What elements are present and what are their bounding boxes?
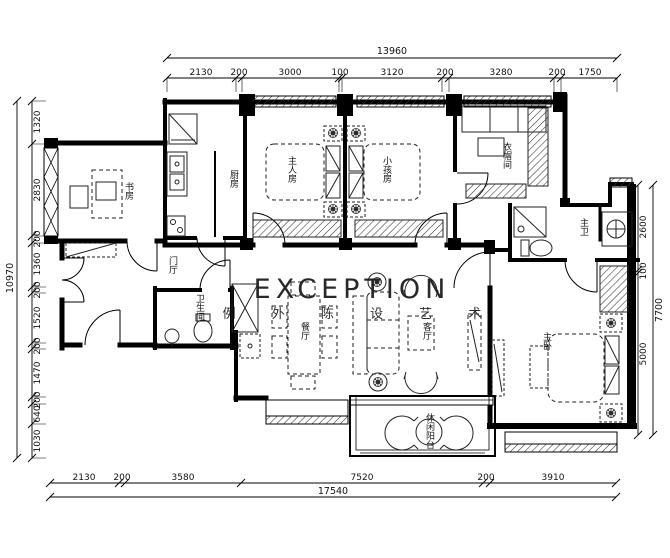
dim-left-1: 2830 xyxy=(33,178,43,201)
label-master-bath: 主卫 xyxy=(578,217,589,236)
label-balcony: 休闲阳台 xyxy=(424,412,435,450)
walls xyxy=(44,92,638,428)
dim-top-2: 3000 xyxy=(279,68,302,78)
master-bedroom-door xyxy=(454,252,490,288)
dining-bay-window xyxy=(266,400,348,424)
dim-bottom-0: 2130 xyxy=(73,473,96,483)
bath-window xyxy=(610,178,632,187)
floor-plan-drawing: EXCEPTION 例 外 陈 设 艺 术 xyxy=(0,0,670,558)
dim-top-5: 200 xyxy=(436,68,453,78)
master-bath-door xyxy=(565,260,597,292)
dim-left-3: 1360 xyxy=(33,252,43,275)
guest-bath-fixtures xyxy=(165,314,212,346)
master-room-window xyxy=(252,96,336,107)
master-room-bed xyxy=(253,126,342,237)
dim-left-0: 1320 xyxy=(33,110,43,133)
label-kitchen: 厨房 xyxy=(228,170,239,189)
dim-top-4: 3120 xyxy=(381,68,404,78)
watermark-title: EXCEPTION xyxy=(254,274,451,305)
dim-right-2: 5000 xyxy=(639,342,649,365)
master-bath-fixtures xyxy=(514,207,632,256)
dim-top-total: 13960 xyxy=(377,46,407,57)
dim-top-6: 3280 xyxy=(490,68,513,78)
dim-right-0: 2600 xyxy=(639,215,649,238)
floor-plan-page: EXCEPTION 例 外 陈 设 艺 术 xyxy=(0,0,670,558)
watermark-subtitle: 例 外 陈 设 艺 术 xyxy=(223,306,498,322)
bedroom-bay-window xyxy=(505,432,617,452)
dim-bottom-total: 17540 xyxy=(318,486,348,497)
dim-left-5: 1520 xyxy=(33,306,43,329)
dim-left-10: 1030 xyxy=(33,429,43,452)
label-hall: 门厅 xyxy=(167,255,178,274)
dim-top-7: 200 xyxy=(548,68,565,78)
label-living: 客厅 xyxy=(421,321,432,340)
entry-shoe-cabinet xyxy=(66,243,116,257)
label-master-room: 主人房 xyxy=(286,155,297,184)
dim-left-6: 200 xyxy=(33,337,43,354)
dim-right-total: 7700 xyxy=(654,298,665,322)
study-door xyxy=(127,241,157,271)
master-bedroom-bed xyxy=(492,266,628,422)
dim-bottom-5: 3910 xyxy=(542,473,565,483)
dim-top-0: 2130 xyxy=(190,68,213,78)
dim-top-1: 200 xyxy=(230,68,247,78)
label-kids-room: 小孩房 xyxy=(381,156,392,184)
label-master-bedroom: 主卧 xyxy=(541,331,552,351)
dim-bottom-1: 200 xyxy=(113,473,130,483)
label-study: 书房 xyxy=(123,182,134,201)
dim-bottom-4: 200 xyxy=(477,473,494,483)
study-side-window xyxy=(44,148,58,236)
dim-left-2: 200 xyxy=(33,230,43,247)
label-dining: 餐厅 xyxy=(299,321,310,340)
living-balcony-door xyxy=(350,396,493,405)
cloakroom-window xyxy=(464,96,551,107)
label-guest-bath: 卫生间 xyxy=(194,294,205,322)
study-desk xyxy=(70,170,122,218)
dim-bottom-3: 7520 xyxy=(351,473,374,483)
kids-room-window xyxy=(357,96,444,107)
dim-bottom-2: 3580 xyxy=(172,473,195,483)
hall-door xyxy=(85,310,120,345)
kitchen-fixtures xyxy=(167,114,197,236)
dim-top-3: 100 xyxy=(331,68,348,78)
dim-left-9: 640 xyxy=(33,405,43,422)
dim-left-4: 200 xyxy=(33,281,43,298)
watermark: EXCEPTION 例 外 陈 设 艺 术 xyxy=(223,274,498,322)
kids-room-bed xyxy=(347,126,443,237)
entry-double-door xyxy=(62,258,84,302)
label-cloakroom: 衣帽间 xyxy=(501,141,512,170)
dim-left-total: 10970 xyxy=(5,263,16,293)
dim-top-8: 1750 xyxy=(579,68,602,78)
dim-right-1: 100 xyxy=(639,262,649,279)
dim-left-7: 1470 xyxy=(33,361,43,384)
